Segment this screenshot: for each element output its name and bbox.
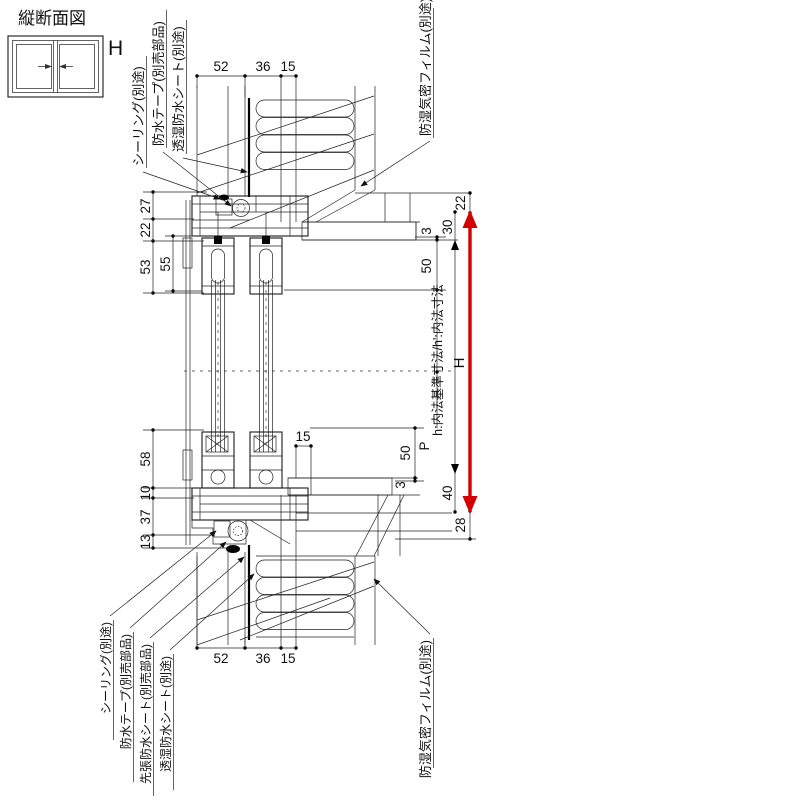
- dim-bottom-15: 15: [280, 651, 295, 666]
- dim-left-58: 58: [138, 451, 153, 466]
- dim-left-55: 55: [158, 256, 173, 271]
- dim-bottom-36: 36: [255, 651, 270, 666]
- interior-sill-board: [288, 478, 452, 531]
- callout-breathable-sheet-bottom: 透湿防水シート(別途): [158, 656, 173, 772]
- inner-dimension-note: h:内法基準寸法/h':内法寸法: [430, 284, 445, 436]
- callouts-top-left: シーリング(別途) 防水テープ(別売部品) 透湿防水シート(別途): [131, 10, 247, 206]
- dim-top-horizontal: 52 36 15: [195, 59, 297, 222]
- dim-left-53: 53: [138, 259, 153, 274]
- dim-left-10: 10: [138, 485, 153, 500]
- dim-top-15: 15: [280, 59, 295, 74]
- dim-left-13: 13: [138, 534, 153, 549]
- dim-pitch-label: P: [417, 441, 432, 450]
- sash-top-rails: [202, 238, 282, 294]
- roller-outer: [211, 470, 225, 484]
- callout-breathable-sheet-top: 透湿防水シート(別途): [171, 26, 186, 152]
- dim-right-30: 30: [440, 219, 455, 234]
- callout-pre-applied-sheet-bottom: 先張防水シート(別売部品): [138, 644, 153, 784]
- wall-bottom-section: [197, 495, 404, 645]
- dim-right-chains: 3 50 P 50 3 30 40 h:内法基準寸法/h':内法寸法 22 28: [284, 191, 476, 540]
- sash-bottom-rails: [202, 432, 282, 488]
- height-arrow-head-top: [463, 210, 478, 228]
- anchor-screw-bottom: [228, 521, 248, 541]
- dim-left-upper: 27 22 53 55: [138, 190, 207, 294]
- waterproof-tape-hatch-bottom: [214, 521, 230, 537]
- dim-right-3-top: 3: [419, 227, 434, 235]
- window-type-icon: [8, 36, 103, 97]
- dim-sill-inner: 15: [294, 429, 312, 495]
- dim-bottom-52: 52: [213, 651, 228, 666]
- callout-bottom-right: 防湿気密フィルム(別途): [374, 579, 434, 778]
- dim-left-lower: 58 10 37 13: [138, 428, 232, 549]
- callout-sealing-bottom: シーリング(別途): [98, 622, 113, 714]
- dim-left-27: 27: [138, 198, 153, 213]
- callout-tape-bottom: 防水テープ(別売部品): [118, 634, 133, 749]
- dim-sill-15: 15: [295, 429, 310, 444]
- dim-left-37: 37: [138, 509, 153, 524]
- callout-vapor-film-top: 防湿気密フィルム(別途): [418, 0, 433, 136]
- dim-right-3-bottom: 3: [393, 481, 408, 489]
- height-arrow-label: H: [451, 358, 468, 369]
- callout-sealing-top: シーリング(別途): [131, 66, 146, 166]
- vertical-section-page: 縦断面図 H: [0, 0, 800, 800]
- dim-top-52: 52: [213, 59, 228, 74]
- callout-top-right: 防湿気密フィルム(別途): [361, 0, 434, 186]
- sliding-arrows-icon: [38, 64, 73, 69]
- callout-tape-top: 防水テープ(別売部品): [151, 21, 166, 146]
- frame-exterior-fins: [183, 200, 192, 545]
- waterproof-tape-hatch-top: [216, 199, 232, 215]
- dim-right-28: 28: [453, 517, 468, 532]
- frame-sill-profile: [192, 488, 308, 553]
- dim-right-40: 40: [440, 485, 455, 500]
- roller-inner: [259, 470, 273, 484]
- dim-top-36: 36: [255, 59, 270, 74]
- dim-right-50-bottom: 50: [398, 445, 413, 460]
- section-drawing: 縦断面図 H: [0, 0, 800, 800]
- callout-vapor-film-bottom: 防湿気密フィルム(別途): [418, 640, 433, 778]
- dim-right-22: 22: [453, 195, 468, 210]
- dim-left-22: 22: [138, 222, 153, 237]
- height-arrow-head-bottom: [463, 496, 478, 514]
- insulation-batts-top: [256, 100, 354, 170]
- frame-head-profile: [192, 195, 308, 245]
- sealing-bead-bottom: [226, 545, 240, 553]
- dim-right-50-top: 50: [419, 258, 434, 273]
- anchor-screw-top: [233, 200, 250, 217]
- callouts-bottom-left: シーリング(別途) 防水テープ(別売部品) 先張防水シート(別売部品) 透湿防水…: [98, 531, 254, 796]
- icon-height-label: H: [108, 37, 123, 60]
- drawing-title: 縦断面図: [18, 9, 86, 28]
- glazing-units: [212, 280, 273, 452]
